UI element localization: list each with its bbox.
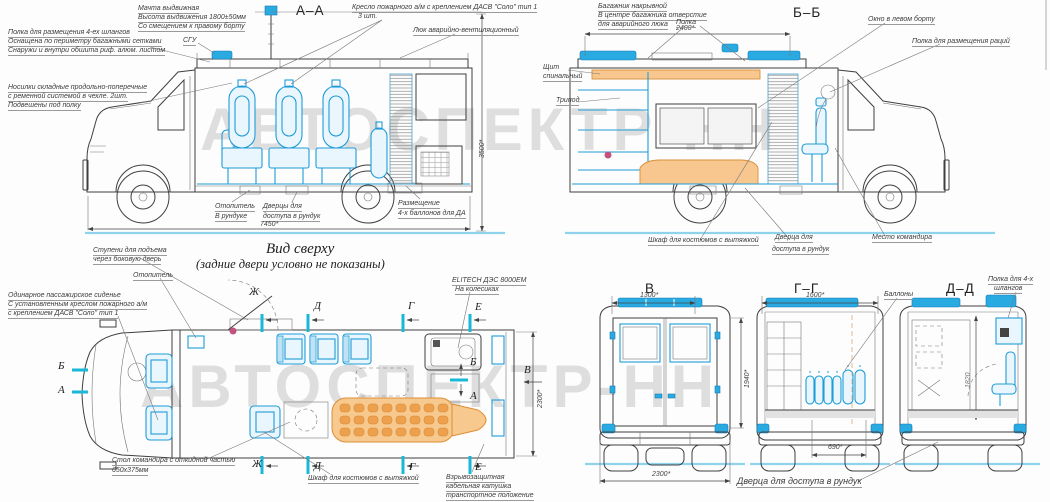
label-cable-3: транспортное положение [446, 491, 534, 501]
open-door [228, 296, 272, 330]
label-top-wardrobe: Шкаф для костюмов с вытяжкой [308, 474, 419, 484]
label-commander: Место командира [872, 233, 932, 243]
light-bar-right [748, 51, 800, 60]
mark-g-bot: Г [409, 461, 415, 473]
section-arrows [266, 320, 542, 466]
label-generator-2: На колесиках [455, 285, 499, 295]
hinges [610, 332, 720, 398]
wheel-right [988, 445, 1022, 471]
bench [640, 160, 758, 184]
wheel-left [604, 445, 638, 471]
rear-doors [613, 318, 717, 426]
mark-b-right: Б [470, 356, 477, 368]
label-rack-3: для аварийного люка [598, 20, 668, 30]
label-table-2: 650х375мм [112, 466, 148, 476]
roof-shelf [197, 59, 468, 68]
wheel-right [845, 445, 879, 471]
roller-shutter [390, 74, 412, 184]
blueprint-sheet: АВТОСПЕКТР-НН АВТОСПЕКТР-НН [0, 0, 1050, 502]
label-seat-2: 3 шт. [358, 12, 377, 21]
top-view-subtitle: (задние двери условно не показаны) [196, 257, 385, 272]
mark-a-left: А [58, 384, 65, 396]
door-window-right [670, 324, 710, 362]
cylinders [806, 366, 865, 404]
mark-d-bot: Д [314, 460, 321, 472]
cab-window [158, 80, 184, 130]
label-top-heater: Отопитель [133, 271, 173, 281]
wheel-right [692, 445, 726, 471]
rear-shelf-2 [492, 400, 504, 436]
light-bar [766, 298, 858, 307]
vent-panel [416, 74, 466, 120]
label-shelf: Полка [676, 18, 696, 28]
mark-g-top: Г [408, 300, 414, 312]
cab-outline [838, 70, 945, 192]
rear-view-v [585, 296, 745, 484]
label-dd-shelf-2: шлангов [994, 284, 1022, 294]
crew-seats [277, 334, 371, 364]
label-heater-1: Отопитель [215, 202, 255, 212]
floor [908, 410, 1018, 418]
section-ticks [72, 314, 470, 474]
label-sgu: СГУ [183, 36, 196, 46]
section-title-aa: А–А [296, 3, 325, 18]
marker-dot [605, 152, 612, 159]
folding-table [356, 368, 408, 396]
roof-rack [578, 59, 806, 68]
commander-table [284, 402, 328, 438]
section-title-bb: Б–Б [793, 5, 821, 20]
label-singleseat-3: с креплением ДАСВ "Соло" тип 1 [8, 309, 118, 319]
light-bar [912, 298, 960, 307]
mark-d-top: Д [314, 300, 321, 312]
mark-a-right: А [470, 390, 477, 402]
dim-1820: 1820 [965, 372, 972, 388]
label-lockers-1: Дверцы для [263, 202, 302, 212]
dim-1940: 1940* [744, 370, 751, 388]
label-wardrobe: Шкаф для костюмов с вытяжкой [648, 236, 759, 246]
label-steps-2: через боковую дверь [93, 255, 161, 265]
driver-seat [146, 354, 172, 388]
mark-v-right: В [524, 364, 531, 376]
side-view-bb [565, 23, 995, 240]
top-view-title: Вид сверху [266, 241, 334, 258]
label-bottles-1: Размещение [398, 199, 440, 209]
label-heater-2: В рундуке [215, 212, 247, 222]
stretcher [332, 398, 486, 442]
wheel-left [761, 445, 795, 471]
label-radio-shelf: Полка для размещения раций [912, 37, 1010, 47]
dim-690: 690* [828, 444, 842, 451]
spine-board-shelf [592, 70, 760, 79]
mark-e-top: Е [475, 301, 482, 313]
bumper [902, 432, 1024, 445]
air-cylinder [371, 128, 387, 178]
label-table-1: Стол командира с откидной частью [112, 456, 235, 466]
commander-seat [802, 98, 828, 182]
mirror-left [100, 320, 116, 327]
front-wheel [117, 171, 169, 223]
rear-shelf-1 [492, 336, 504, 364]
firefighter-seats [222, 80, 356, 184]
marker-dot [230, 328, 237, 335]
floor [765, 410, 875, 418]
partition-panel [912, 320, 970, 412]
dim-2300-top: 2300* [537, 390, 544, 408]
seat [992, 352, 1016, 406]
mast-head [265, 6, 277, 15]
bumper [759, 432, 881, 445]
section-view-dd [858, 292, 1040, 481]
dim-7450: 7450* [260, 221, 278, 228]
siren-sgu [212, 51, 232, 59]
light-bar [618, 298, 702, 307]
label-mast-3: Со смещением к правому борту [138, 22, 245, 32]
label-stretcher-3: Подвешены под полку [8, 101, 81, 111]
label-window: Окно в левом борту [868, 15, 935, 25]
label-hatchdoor-2: доступа в рундук [772, 245, 829, 255]
label-hatch: Люк аварийно-вентиляционный [413, 26, 519, 36]
mark-b-left: Б [58, 360, 65, 372]
label-spine-2: спинальный [543, 72, 582, 82]
label-hatchdoor-1: Дверца для [775, 233, 813, 243]
dim-1600: 1600* [806, 292, 824, 299]
mark-zh-top: Ж [249, 286, 259, 298]
label-seat-1: Кресло пожарного а/м с креплением ДАСВ "… [352, 3, 537, 13]
section-view-gg [750, 296, 897, 471]
wardrobe-shutter [768, 74, 798, 184]
label-bottles-2: 4-х баллонов для ДА [398, 209, 466, 219]
beacon-box [986, 295, 1016, 307]
section-title-dd: Д–Д [946, 281, 975, 296]
dim-2300-rear: 2300* [652, 471, 670, 478]
label-shelf-3: Снаружи и внутри обшита риф. алюм. листо… [8, 46, 165, 56]
label-tripod: Трипод [556, 96, 579, 106]
passenger-seat [146, 406, 172, 440]
mark-e-bot: Е [475, 461, 482, 473]
dim-1300: 1300* [640, 292, 658, 299]
door-window-left [620, 324, 660, 362]
license-recess [646, 448, 684, 465]
label-cylinders: Баллоны [884, 290, 913, 300]
mark-zh-bot: Ж [252, 458, 262, 470]
front-wheel [864, 171, 916, 223]
dim-3500: 3500* [479, 140, 486, 158]
label-rear-hatchdoor: Дверца для доступа в рундук [737, 475, 862, 488]
light-bar-left [580, 51, 636, 60]
wheel-left [904, 445, 938, 471]
